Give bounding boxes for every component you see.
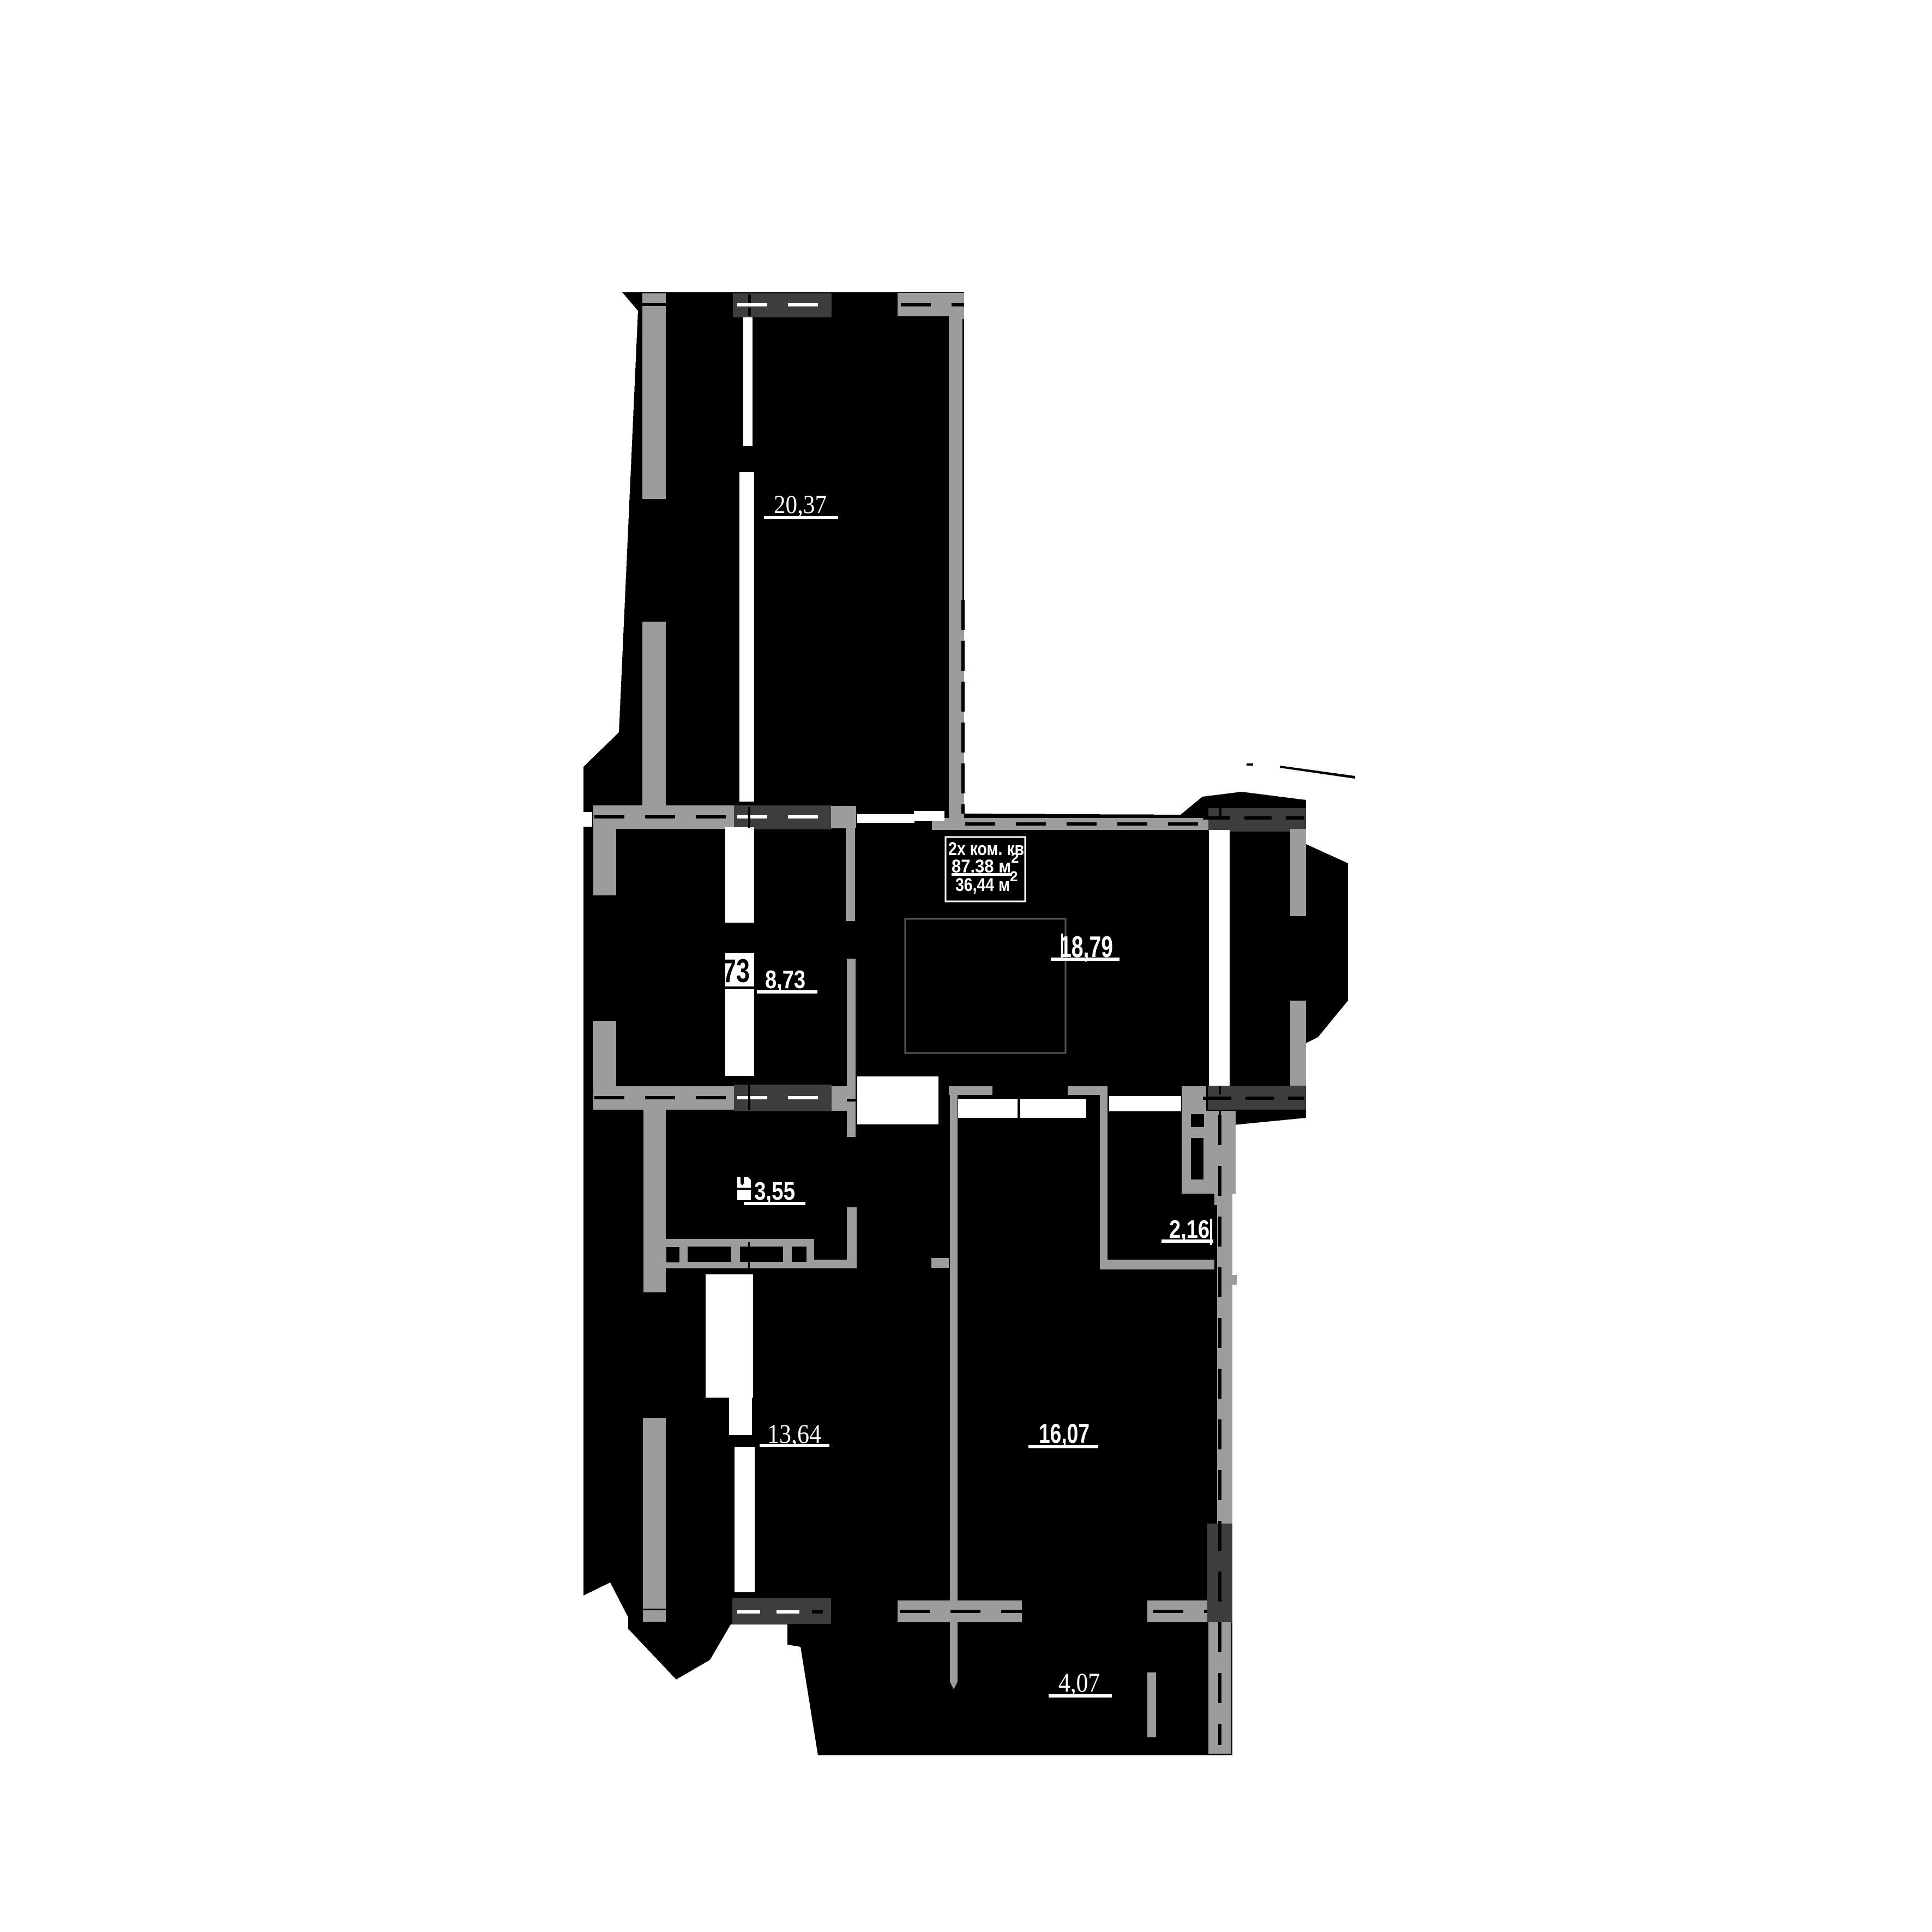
- svg-text:20,37: 20,37: [774, 490, 827, 519]
- svg-text:8,73: 8,73: [765, 965, 805, 994]
- svg-text:2,16: 2,16: [1169, 1215, 1209, 1243]
- svg-text:4,07: 4,07: [1058, 1667, 1100, 1698]
- svg-text:3,55: 3,55: [754, 1177, 795, 1205]
- svg-text:16,07: 16,07: [1039, 1418, 1090, 1449]
- svg-text:73: 73: [723, 953, 750, 989]
